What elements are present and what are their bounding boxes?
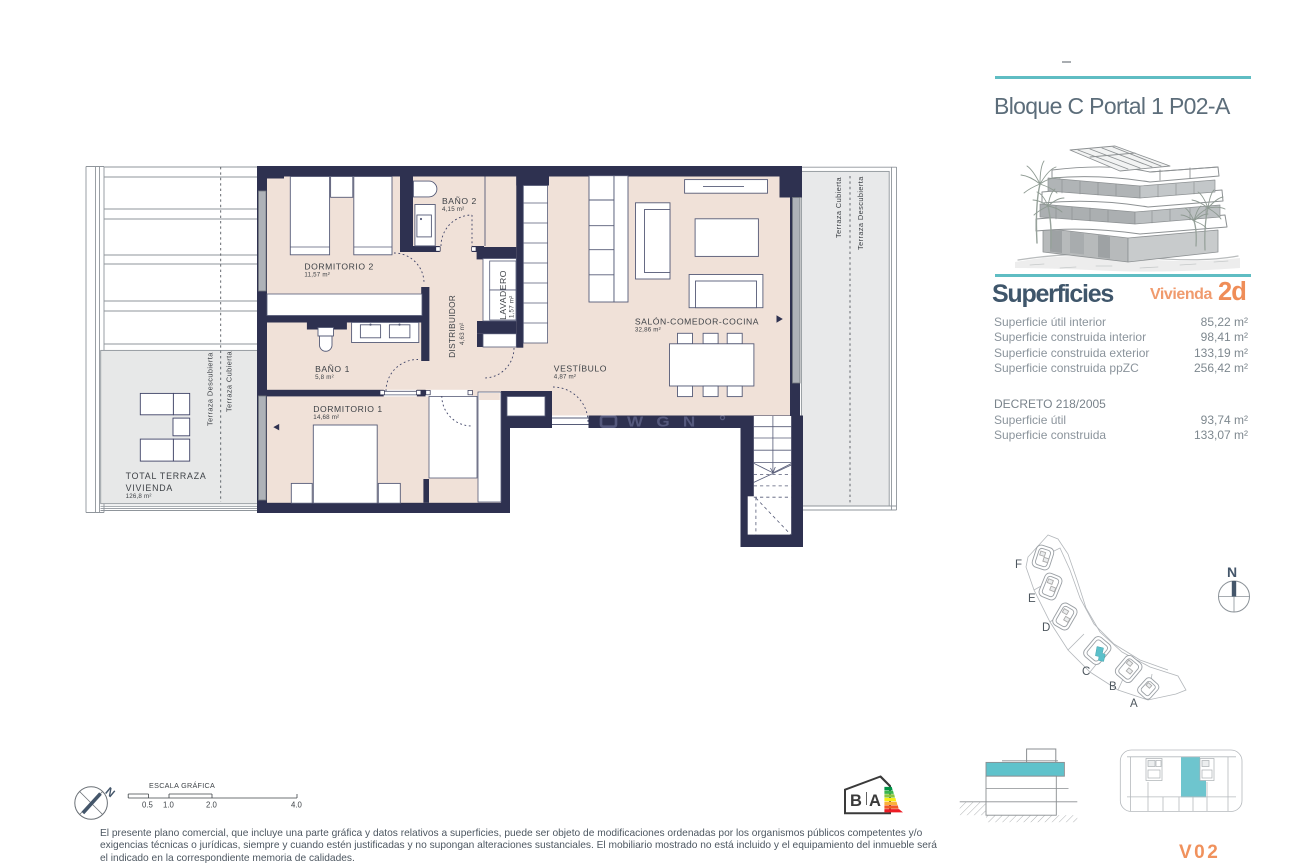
svg-text:1.0: 1.0 bbox=[163, 801, 175, 810]
svg-text:1,57 m²: 1,57 m² bbox=[509, 296, 516, 318]
svg-text:A: A bbox=[869, 792, 881, 810]
svg-text:N: N bbox=[103, 786, 117, 801]
svg-text:4,15 m²: 4,15 m² bbox=[442, 206, 464, 213]
svg-text:N: N bbox=[1227, 564, 1237, 580]
svg-text:TOTAL TERRAZA: TOTAL TERRAZA bbox=[126, 471, 207, 481]
svg-text:32,86 m²: 32,86 m² bbox=[635, 327, 661, 334]
svg-text:BAÑO 1: BAÑO 1 bbox=[315, 364, 350, 374]
svg-text:DORMITORIO 1: DORMITORIO 1 bbox=[313, 404, 382, 414]
svg-text:SALÓN-COMEDOR-COCINA: SALÓN-COMEDOR-COCINA bbox=[635, 317, 759, 327]
svg-text:14,68 m²: 14,68 m² bbox=[313, 414, 339, 421]
svg-text:WGN: WGN bbox=[627, 415, 708, 431]
svg-text:Terraza Cubierta: Terraza Cubierta bbox=[225, 350, 234, 412]
svg-text:4,87 m²: 4,87 m² bbox=[554, 374, 576, 381]
svg-text:B: B bbox=[850, 792, 862, 810]
svg-text:C: C bbox=[1082, 666, 1090, 678]
svg-text:A: A bbox=[1130, 698, 1138, 710]
svg-text:VIVIENDA: VIVIENDA bbox=[126, 483, 173, 493]
svg-text:2.0: 2.0 bbox=[206, 801, 218, 810]
svg-text:Terraza Descubierta: Terraza Descubierta bbox=[206, 352, 215, 426]
svg-text:VESTÍBULO: VESTÍBULO bbox=[554, 364, 607, 374]
svg-text:Terraza Descubierta: Terraza Descubierta bbox=[856, 176, 865, 250]
svg-text:DISTRIBUIDOR: DISTRIBUIDOR bbox=[448, 295, 457, 358]
svg-text:DORMITORIO 2: DORMITORIO 2 bbox=[304, 262, 373, 272]
svg-text:B: B bbox=[1109, 681, 1117, 693]
svg-text:F: F bbox=[1015, 559, 1022, 571]
svg-text:Terraza Cubierta: Terraza Cubierta bbox=[834, 176, 843, 238]
svg-text:ESCALA GRÁFICA: ESCALA GRÁFICA bbox=[149, 781, 215, 790]
svg-text:126,8 m²: 126,8 m² bbox=[126, 493, 152, 500]
svg-text:D: D bbox=[1042, 622, 1050, 634]
svg-text:BAÑO 2: BAÑO 2 bbox=[442, 196, 477, 206]
svg-text:11,57 m²: 11,57 m² bbox=[304, 272, 330, 279]
svg-text:5,8 m²: 5,8 m² bbox=[315, 374, 334, 381]
svg-text:0.5: 0.5 bbox=[142, 801, 154, 810]
svg-text:4.0: 4.0 bbox=[291, 801, 303, 810]
svg-text:LAVADERO: LAVADERO bbox=[498, 270, 508, 320]
svg-text:4,63 m²: 4,63 m² bbox=[459, 323, 466, 345]
svg-text:E: E bbox=[1028, 593, 1036, 605]
